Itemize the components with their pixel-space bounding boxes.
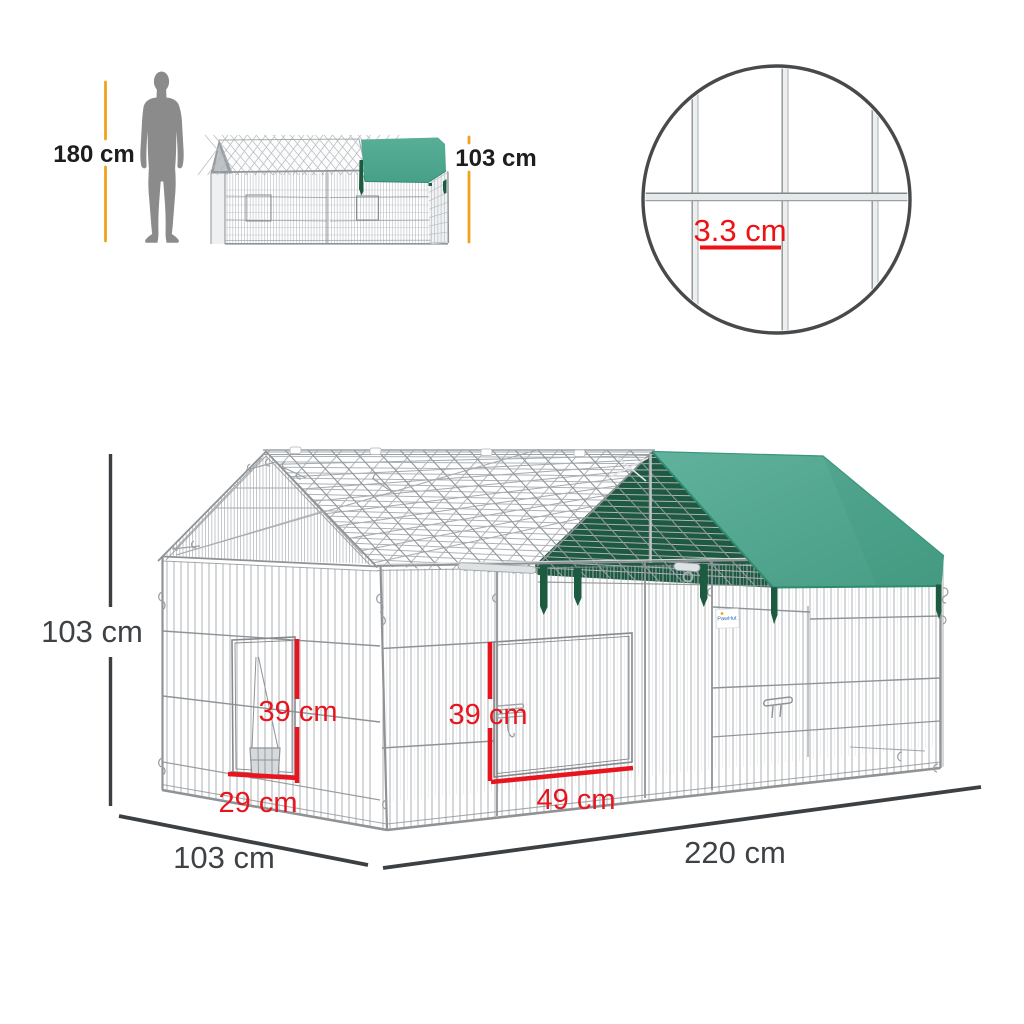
svg-text:39 cm: 39 cm [449, 699, 528, 731]
svg-text:103 cm: 103 cm [173, 840, 275, 875]
svg-text:103 cm: 103 cm [455, 145, 536, 172]
svg-text:PawHut: PawHut [717, 616, 737, 623]
svg-text:49 cm: 49 cm [537, 784, 616, 816]
svg-text:3.3 cm: 3.3 cm [693, 213, 786, 248]
svg-text:220 cm: 220 cm [684, 835, 786, 870]
svg-text:39 cm: 39 cm [259, 696, 338, 728]
svg-text:103 cm: 103 cm [41, 614, 143, 649]
svg-text:180 cm: 180 cm [53, 141, 134, 168]
svg-text:29 cm: 29 cm [219, 787, 298, 819]
